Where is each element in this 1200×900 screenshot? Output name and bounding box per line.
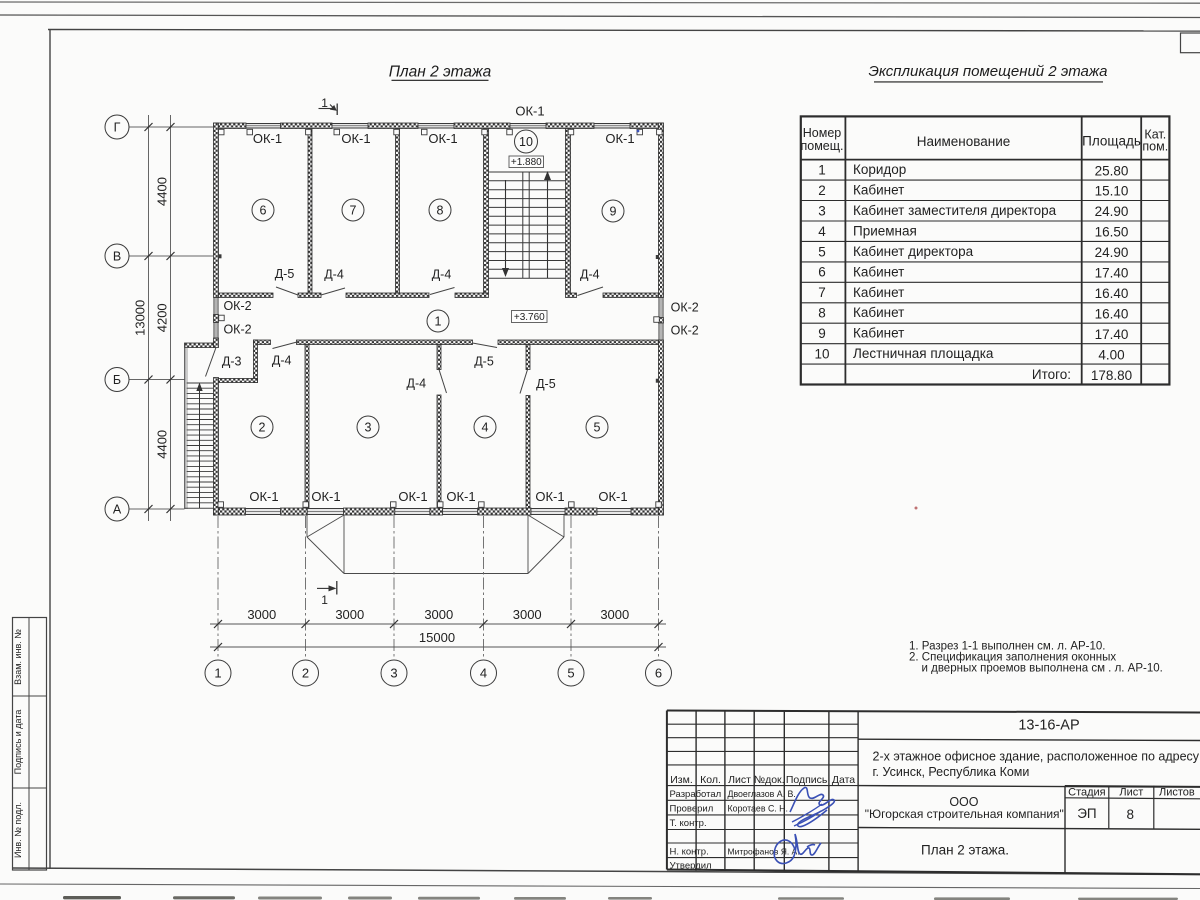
svg-text:16.50: 16.50 (1095, 225, 1129, 240)
svg-text:В: В (113, 249, 121, 263)
svg-text:"Югорская строительная компани: "Югорская строительная компания" (865, 807, 1064, 821)
svg-text:Митрофанов Я. А.: Митрофанов Я. А. (728, 847, 800, 857)
svg-text:ОК-2: ОК-2 (671, 324, 699, 338)
svg-text:2: 2 (818, 183, 826, 198)
svg-text:Г: Г (114, 120, 121, 134)
svg-text:5: 5 (567, 666, 574, 681)
svg-text:ОК-2: ОК-2 (223, 323, 251, 337)
svg-text:4400: 4400 (155, 430, 170, 459)
svg-text:8: 8 (818, 306, 826, 321)
svg-text:17.40: 17.40 (1095, 327, 1129, 342)
svg-text:Листов: Листов (1159, 787, 1195, 799)
svg-text:1: 1 (214, 666, 221, 681)
svg-text:4400: 4400 (155, 177, 170, 206)
svg-text:А: А (113, 502, 122, 516)
svg-text:5: 5 (818, 244, 826, 259)
svg-text:8: 8 (1127, 807, 1135, 822)
svg-text:8: 8 (437, 203, 444, 217)
svg-text:Лист: Лист (728, 774, 751, 786)
svg-text:7: 7 (350, 203, 357, 217)
svg-text:3000: 3000 (335, 607, 364, 622)
svg-text:и дверных проемов выполнена см: и дверных проемов выполнена см . л. АР-1… (922, 663, 1163, 675)
svg-text:3000: 3000 (600, 607, 629, 622)
svg-text:Подпись: Подпись (786, 774, 828, 786)
svg-text:6: 6 (818, 265, 826, 280)
svg-text:Дата: Дата (832, 774, 855, 786)
svg-text:ОК-1: ОК-1 (398, 489, 427, 504)
svg-text:Д-5: Д-5 (536, 377, 556, 391)
svg-text:Приемная: Приемная (853, 223, 917, 238)
svg-text:178.80: 178.80 (1091, 368, 1132, 383)
svg-text:Д-4: Д-4 (407, 377, 427, 391)
svg-text:пом.: пом. (1142, 140, 1168, 154)
svg-text:Изм.: Изм. (670, 774, 693, 786)
svg-text:9: 9 (818, 326, 826, 341)
svg-text:ОК-1: ОК-1 (311, 489, 340, 504)
svg-text:1: 1 (435, 314, 442, 328)
svg-text:3: 3 (818, 203, 826, 218)
svg-text:9: 9 (610, 204, 617, 218)
svg-text:Кабинет: Кабинет (853, 183, 904, 198)
svg-text:ОК-2: ОК-2 (223, 299, 251, 313)
svg-text:помещ.: помещ. (800, 139, 843, 153)
svg-text:Б: Б (113, 373, 121, 387)
svg-text:Д-3: Д-3 (222, 355, 242, 369)
svg-text:Подпись и дата: Подпись и дата (13, 710, 23, 775)
svg-text:Взам. инв. №: Взам. инв. № (13, 629, 23, 685)
svg-text:4: 4 (480, 666, 487, 681)
svg-text:25.80: 25.80 (1095, 163, 1129, 178)
svg-text:Т. контр.: Т. контр. (670, 818, 707, 829)
svg-text:Коридор: Коридор (853, 162, 906, 177)
svg-text:24.90: 24.90 (1095, 245, 1129, 260)
svg-text:3: 3 (365, 420, 372, 434)
svg-text:17.40: 17.40 (1095, 266, 1129, 281)
svg-text:16.40: 16.40 (1095, 286, 1129, 301)
svg-text:3000: 3000 (513, 607, 542, 622)
svg-text:ЭП: ЭП (1077, 806, 1096, 821)
svg-text:Экспликация помещений 2 этажа: Экспликация помещений 2 этажа (868, 63, 1107, 80)
svg-text:16.40: 16.40 (1095, 306, 1129, 321)
svg-text:ОК-1: ОК-1 (605, 131, 634, 146)
svg-text:ОК-1: ОК-1 (249, 489, 278, 504)
svg-text:ОК-1: ОК-1 (535, 489, 564, 504)
svg-text:Д-5: Д-5 (275, 267, 295, 281)
svg-text:Д-5: Д-5 (474, 355, 494, 369)
svg-text:Стадия: Стадия (1068, 787, 1106, 799)
svg-text:4.00: 4.00 (1098, 347, 1124, 362)
svg-text:Д-4: Д-4 (432, 268, 452, 282)
svg-text:1: 1 (321, 593, 328, 607)
svg-text:Лист: Лист (1119, 787, 1143, 799)
svg-text:4200: 4200 (155, 303, 170, 332)
svg-text:1: 1 (321, 96, 328, 110)
svg-text:4: 4 (482, 420, 489, 434)
svg-text:Кабинет: Кабинет (853, 264, 904, 279)
svg-text:24.90: 24.90 (1095, 204, 1129, 219)
svg-text:ОК-1: ОК-1 (446, 489, 475, 504)
svg-text:4: 4 (818, 224, 826, 239)
svg-text:Кабинет: Кабинет (853, 305, 904, 320)
svg-text:ОК-1: ОК-1 (598, 489, 627, 504)
svg-text:2: 2 (259, 420, 266, 434)
svg-text:№док.: №док. (754, 774, 785, 786)
svg-text:г. Усинск, Республика Коми: г. Усинск, Республика Коми (873, 765, 1030, 779)
svg-text:10: 10 (519, 135, 533, 149)
svg-text:6: 6 (260, 203, 267, 217)
svg-text:ОК-1: ОК-1 (515, 104, 544, 119)
svg-text:13-16-АР: 13-16-АР (1018, 718, 1079, 734)
svg-text:План 2 этажа.: План 2 этажа. (921, 843, 1009, 858)
svg-text:План 2 этажа: План 2 этажа (389, 64, 492, 81)
svg-text:Разработал: Разработал (670, 789, 722, 800)
svg-text:Площадь: Площадь (1082, 134, 1141, 149)
svg-text:Д-4: Д-4 (324, 268, 344, 282)
svg-text:Наименование: Наименование (917, 134, 1011, 149)
svg-text:3: 3 (390, 666, 397, 681)
svg-text:13000: 13000 (133, 300, 148, 336)
svg-text:3000: 3000 (424, 607, 453, 622)
svg-text:+1.880: +1.880 (511, 157, 542, 168)
svg-text:Номер: Номер (803, 126, 842, 140)
svg-text:7: 7 (818, 285, 826, 300)
svg-text:5: 5 (594, 420, 601, 434)
svg-text:Кабинет директора: Кабинет директора (853, 244, 974, 259)
svg-text:ОК-1: ОК-1 (253, 131, 282, 146)
svg-text:Кабинет заместителя директора: Кабинет заместителя директора (853, 203, 1057, 218)
svg-text:Инв. № подл.: Инв. № подл. (13, 802, 23, 858)
svg-text:Двоеглазов А. В.: Двоеглазов А. В. (728, 789, 796, 799)
svg-text:Итого:: Итого: (1032, 367, 1071, 382)
svg-text:ОК-2: ОК-2 (671, 301, 699, 315)
svg-text:2: 2 (302, 666, 309, 681)
svg-text:Утвердил: Утвердил (670, 861, 712, 872)
svg-text:Коротаев С. Н.: Коротаев С. Н. (728, 804, 788, 814)
svg-text:Проверил: Проверил (670, 804, 714, 815)
svg-text:1: 1 (818, 162, 826, 177)
svg-text:Д-4: Д-4 (272, 354, 292, 368)
svg-text:15000: 15000 (419, 630, 455, 645)
svg-text:+3.760: +3.760 (514, 312, 545, 323)
svg-text:Кол.: Кол. (700, 774, 721, 786)
svg-text:Н. контр.: Н. контр. (670, 847, 709, 858)
svg-text:ОК-1: ОК-1 (428, 131, 457, 146)
svg-text:15.10: 15.10 (1095, 184, 1129, 199)
svg-text:Кабинет: Кабинет (853, 285, 904, 300)
svg-text:10: 10 (814, 347, 829, 362)
svg-text:Д-4: Д-4 (580, 268, 600, 282)
svg-text:ОК-1: ОК-1 (341, 131, 370, 146)
svg-text:Лестничная площадка: Лестничная площадка (853, 346, 994, 361)
svg-text:6: 6 (655, 666, 662, 681)
svg-text:Кабинет: Кабинет (853, 326, 904, 341)
svg-text:3000: 3000 (247, 607, 276, 622)
svg-text:2-х этажное офисное здание, ра: 2-х этажное офисное здание, расположенно… (873, 750, 1200, 764)
